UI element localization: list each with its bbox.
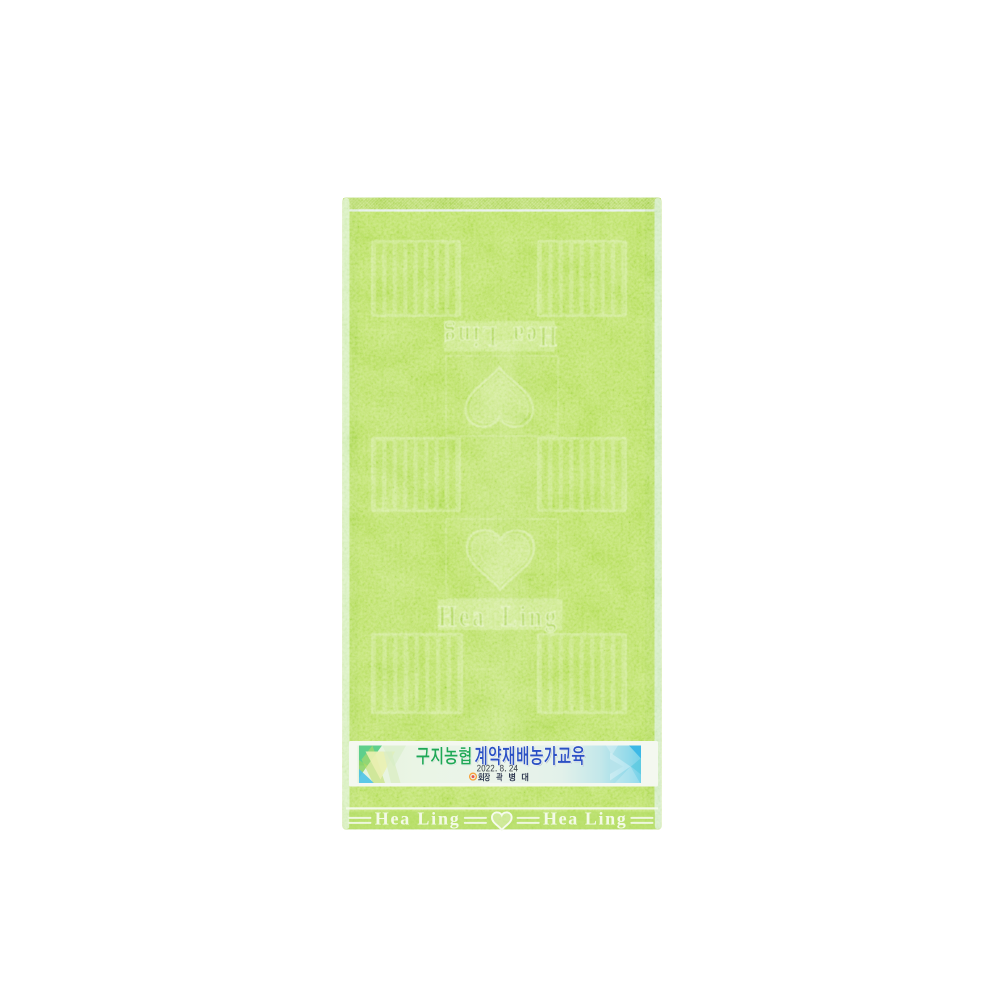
svg-text:Hea Ling: Hea Ling: [543, 808, 627, 828]
svg-text:Hea Ling: Hea Ling: [375, 808, 461, 828]
